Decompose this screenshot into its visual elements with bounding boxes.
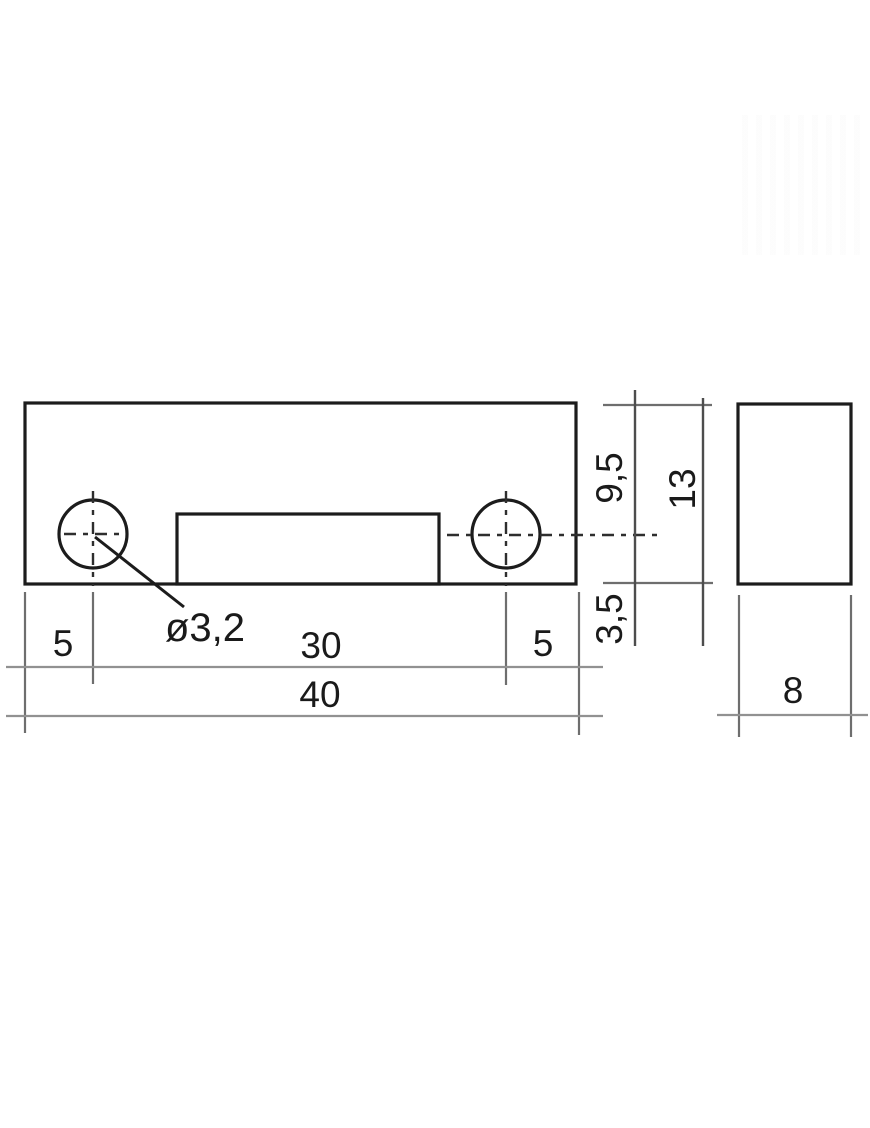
label-offset-left: 5 [53,623,74,664]
front-view-notch [177,514,439,584]
hole-diameter-leader-line [95,537,184,607]
front-view [25,403,657,607]
front-view-body [25,403,576,584]
technical-drawing-page: 5 ø3,2 30 5 40 9,5 13 3,5 8 [0,0,870,1128]
label-hole-spacing: 30 [300,625,341,666]
side-view [738,404,851,584]
side-view-dimensions: 8 [717,595,868,737]
drawing-svg: 5 ø3,2 30 5 40 9,5 13 3,5 8 [0,0,870,1128]
label-hole-diameter: ø3,2 [165,606,245,650]
label-depth: 8 [783,670,804,711]
label-overall-height: 13 [662,468,703,509]
label-overall-width: 40 [299,674,340,715]
side-view-body [738,404,851,584]
label-hole-center-to-bottom: 3,5 [589,593,630,644]
label-offset-right: 5 [533,623,554,664]
label-top-to-hole-center: 9,5 [589,452,630,503]
